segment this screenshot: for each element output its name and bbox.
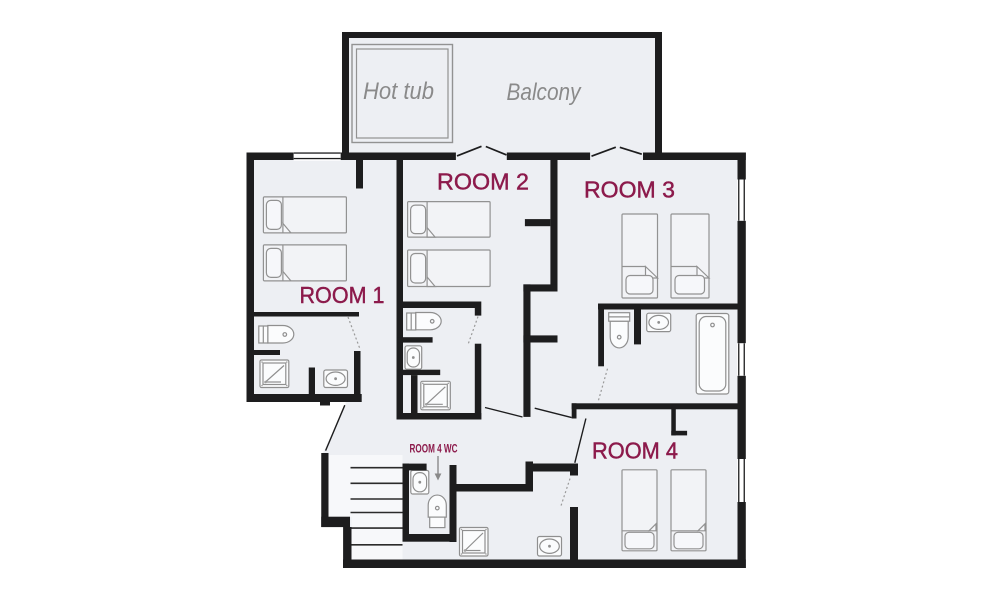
svg-text:Hot tub: Hot tub bbox=[363, 78, 434, 105]
svg-text:ROOM 1: ROOM 1 bbox=[300, 282, 385, 308]
svg-text:ROOM 3: ROOM 3 bbox=[584, 177, 675, 203]
svg-text:Balcony: Balcony bbox=[507, 79, 583, 106]
svg-text:ROOM 4: ROOM 4 bbox=[592, 438, 678, 464]
svg-text:ROOM 4 WC: ROOM 4 WC bbox=[410, 442, 458, 456]
svg-text:ROOM 2: ROOM 2 bbox=[437, 169, 529, 195]
